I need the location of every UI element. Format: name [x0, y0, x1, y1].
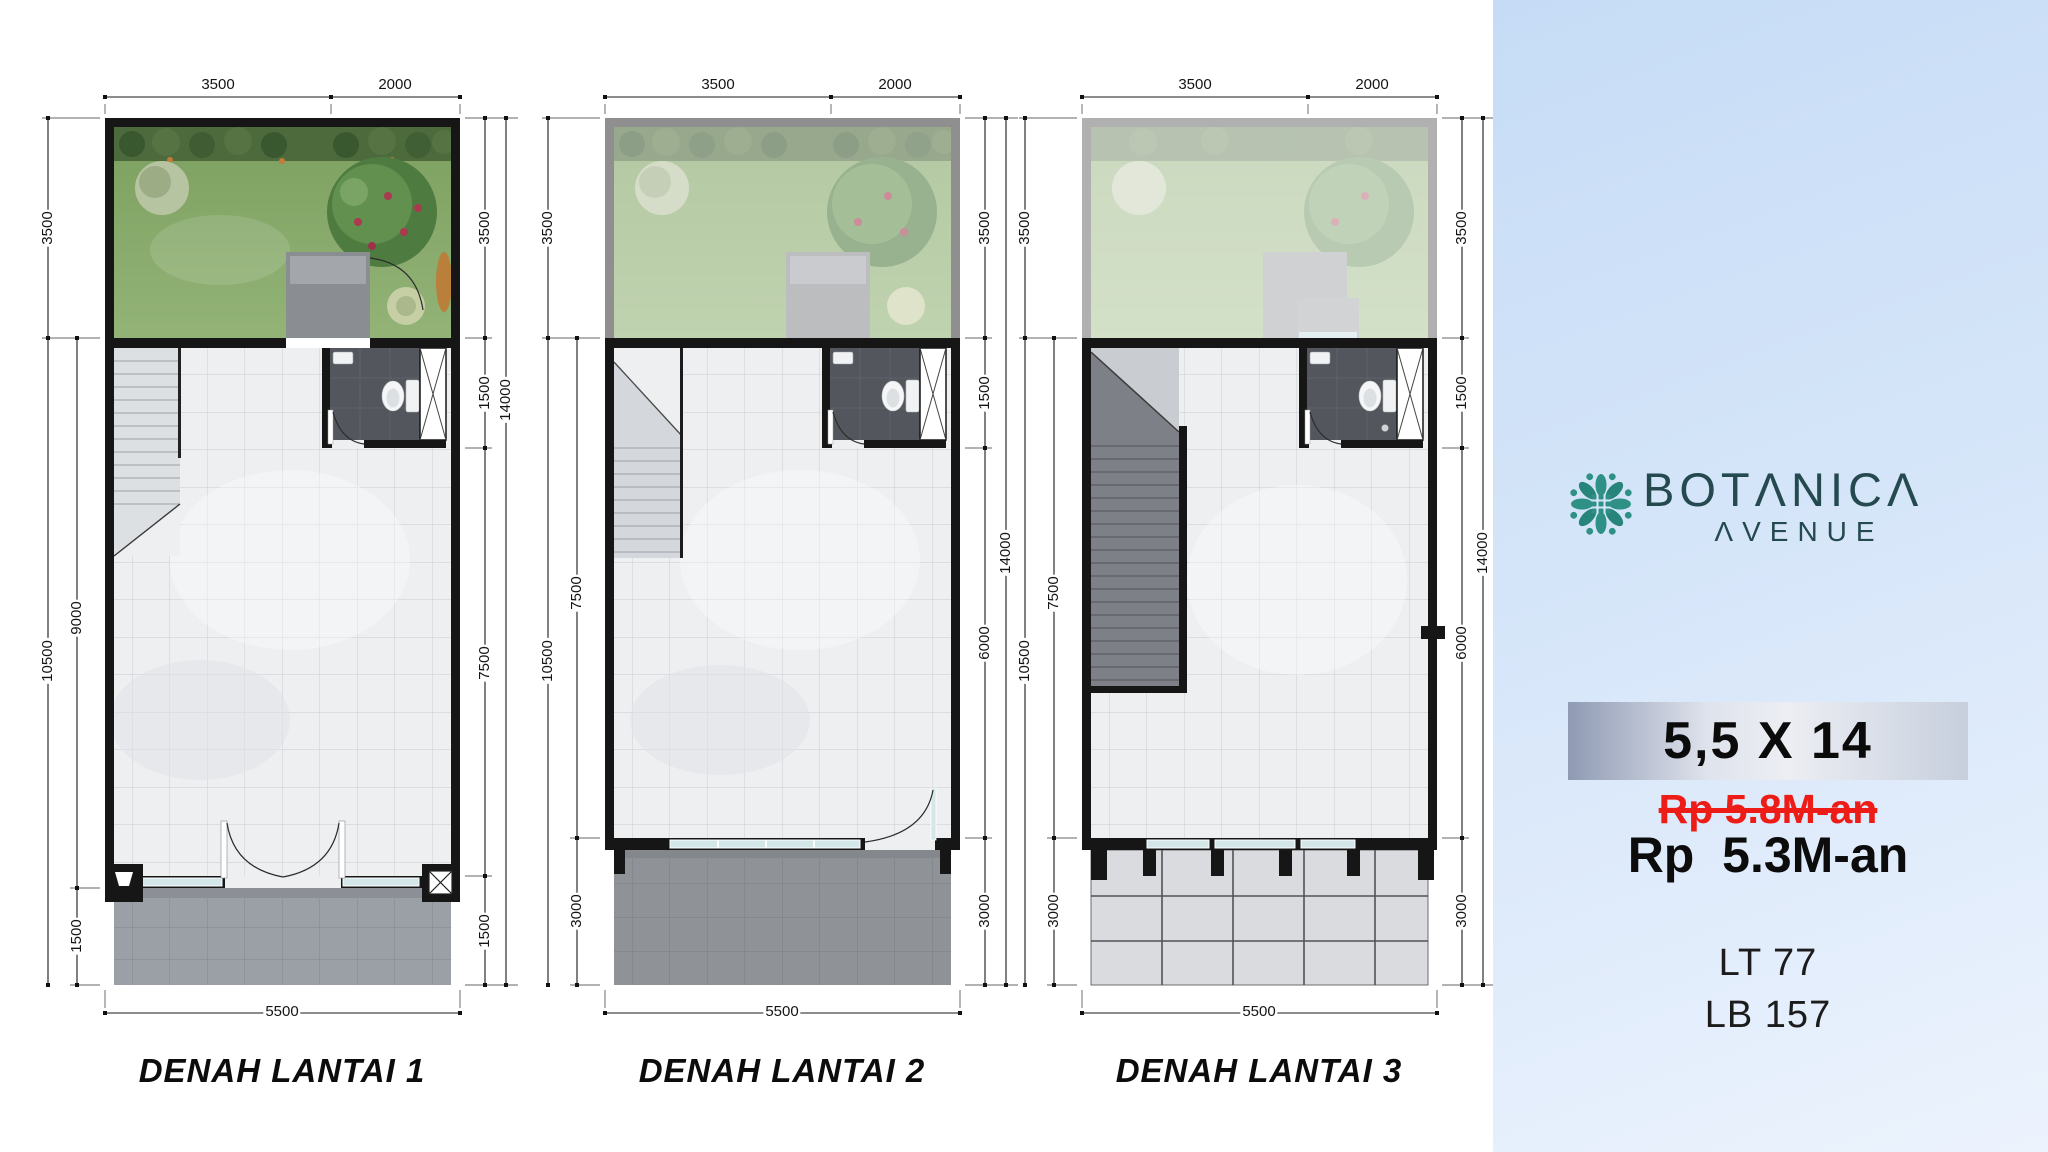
- info-panel: BOTΛNICΛ ΛVENUE 5,5 X 14 Rp 5.8M-an Rp 5…: [1493, 0, 2048, 1152]
- dim-label: 10500: [540, 638, 556, 684]
- staircase: [614, 348, 683, 558]
- dim-label: 3500: [40, 209, 56, 246]
- building-area: LB 157: [1493, 994, 2043, 1037]
- roof-terrace: [1091, 850, 1434, 985]
- garden-faded: [1082, 118, 1437, 347]
- wall-notch: [1421, 626, 1445, 639]
- land-area: LT 77: [1493, 942, 2043, 985]
- window: [1301, 840, 1355, 848]
- dim-label: 3500: [477, 209, 493, 246]
- dim-label: 2000: [1353, 77, 1390, 93]
- new-price: Rp 5.3M-an: [1493, 826, 2043, 884]
- dim-label: 1500: [1454, 374, 1470, 411]
- floor-plan-2: 3500 2000 3500 10500 7500 3000 3500 1500…: [520, 0, 1040, 1152]
- dim-label: 5500: [263, 1004, 300, 1020]
- dim-label: 14000: [498, 377, 514, 423]
- dim-label: 7500: [1046, 574, 1062, 611]
- dim-label: 6000: [1454, 624, 1470, 661]
- staircase: [114, 348, 181, 556]
- dim-label: 1500: [477, 912, 493, 949]
- dim-label: 14000: [1475, 530, 1491, 576]
- faucet-icon: [1382, 425, 1389, 432]
- plan-title: DENAH LANTAI 1: [139, 1052, 426, 1090]
- dim-label: 3000: [977, 892, 993, 929]
- flower-bed: [436, 252, 452, 312]
- dim-label: 7500: [569, 574, 585, 611]
- rear-wall: [1082, 838, 1437, 850]
- floor-plan-2-drawing: [520, 0, 1040, 1152]
- dim-label: 10500: [1017, 638, 1033, 684]
- floor-plan-1-drawing: [20, 0, 540, 1152]
- floor-plan-1: 3500 2000 3500 10500 9000 1500 3500 1500…: [20, 0, 540, 1152]
- brand-subtitle: ΛVENUE: [1643, 516, 1955, 548]
- dim-label: 14000: [998, 530, 1014, 576]
- dim-label: 10500: [40, 638, 56, 684]
- plan-title: DENAH LANTAI 2: [639, 1052, 926, 1090]
- window: [142, 878, 222, 886]
- dim-label: 3500: [699, 77, 736, 93]
- window: [1147, 840, 1209, 848]
- garden-faded: [605, 118, 960, 347]
- brand-name: BOTΛNICΛ: [1643, 462, 1923, 517]
- staircase: [1091, 348, 1187, 693]
- dim-label: 7500: [477, 644, 493, 681]
- terrace: [614, 850, 951, 985]
- sink-icon: [1310, 352, 1330, 364]
- carport: [114, 888, 451, 985]
- sink-icon: [333, 352, 353, 364]
- plan-title: DENAH LANTAI 3: [1116, 1052, 1403, 1090]
- window: [343, 878, 419, 886]
- size-badge: 5,5 X 14: [1568, 702, 1968, 780]
- sink-icon: [833, 352, 853, 364]
- floor-plan-3: 3500 2000 3500 10500 7500 3000 3500 1500…: [997, 0, 1517, 1152]
- dim-label: 1500: [477, 374, 493, 411]
- bathroom: [1299, 348, 1423, 448]
- floor-plan-3-drawing: [997, 0, 1517, 1152]
- dim-label: 3500: [977, 209, 993, 246]
- dim-label: 5500: [1240, 1004, 1277, 1020]
- dim-label: 3000: [1454, 892, 1470, 929]
- dim-label: 3000: [1046, 892, 1062, 929]
- dim-label: 3500: [199, 77, 236, 93]
- dim-label: 3500: [1017, 209, 1033, 246]
- bathroom: [322, 348, 446, 448]
- window: [1215, 840, 1295, 848]
- flower-rosette-icon: [1565, 468, 1637, 540]
- dim-label: 2000: [376, 77, 413, 93]
- dim-label: 6000: [977, 624, 993, 661]
- dim-label: 3000: [569, 892, 585, 929]
- dim-label: 3500: [1176, 77, 1213, 93]
- garden: [114, 127, 456, 338]
- dim-label: 1500: [977, 374, 993, 411]
- flyer-page: 3500 2000 3500 10500 9000 1500 3500 1500…: [0, 0, 2048, 1152]
- dim-label: 3500: [540, 209, 556, 246]
- dim-label: 3500: [1454, 209, 1470, 246]
- dim-label: 1500: [69, 917, 85, 954]
- dim-label: 5500: [763, 1004, 800, 1020]
- dim-label: 2000: [876, 77, 913, 93]
- bathroom: [822, 348, 946, 448]
- size-label: 5,5 X 14: [1663, 711, 1873, 771]
- dim-label: 9000: [69, 599, 85, 636]
